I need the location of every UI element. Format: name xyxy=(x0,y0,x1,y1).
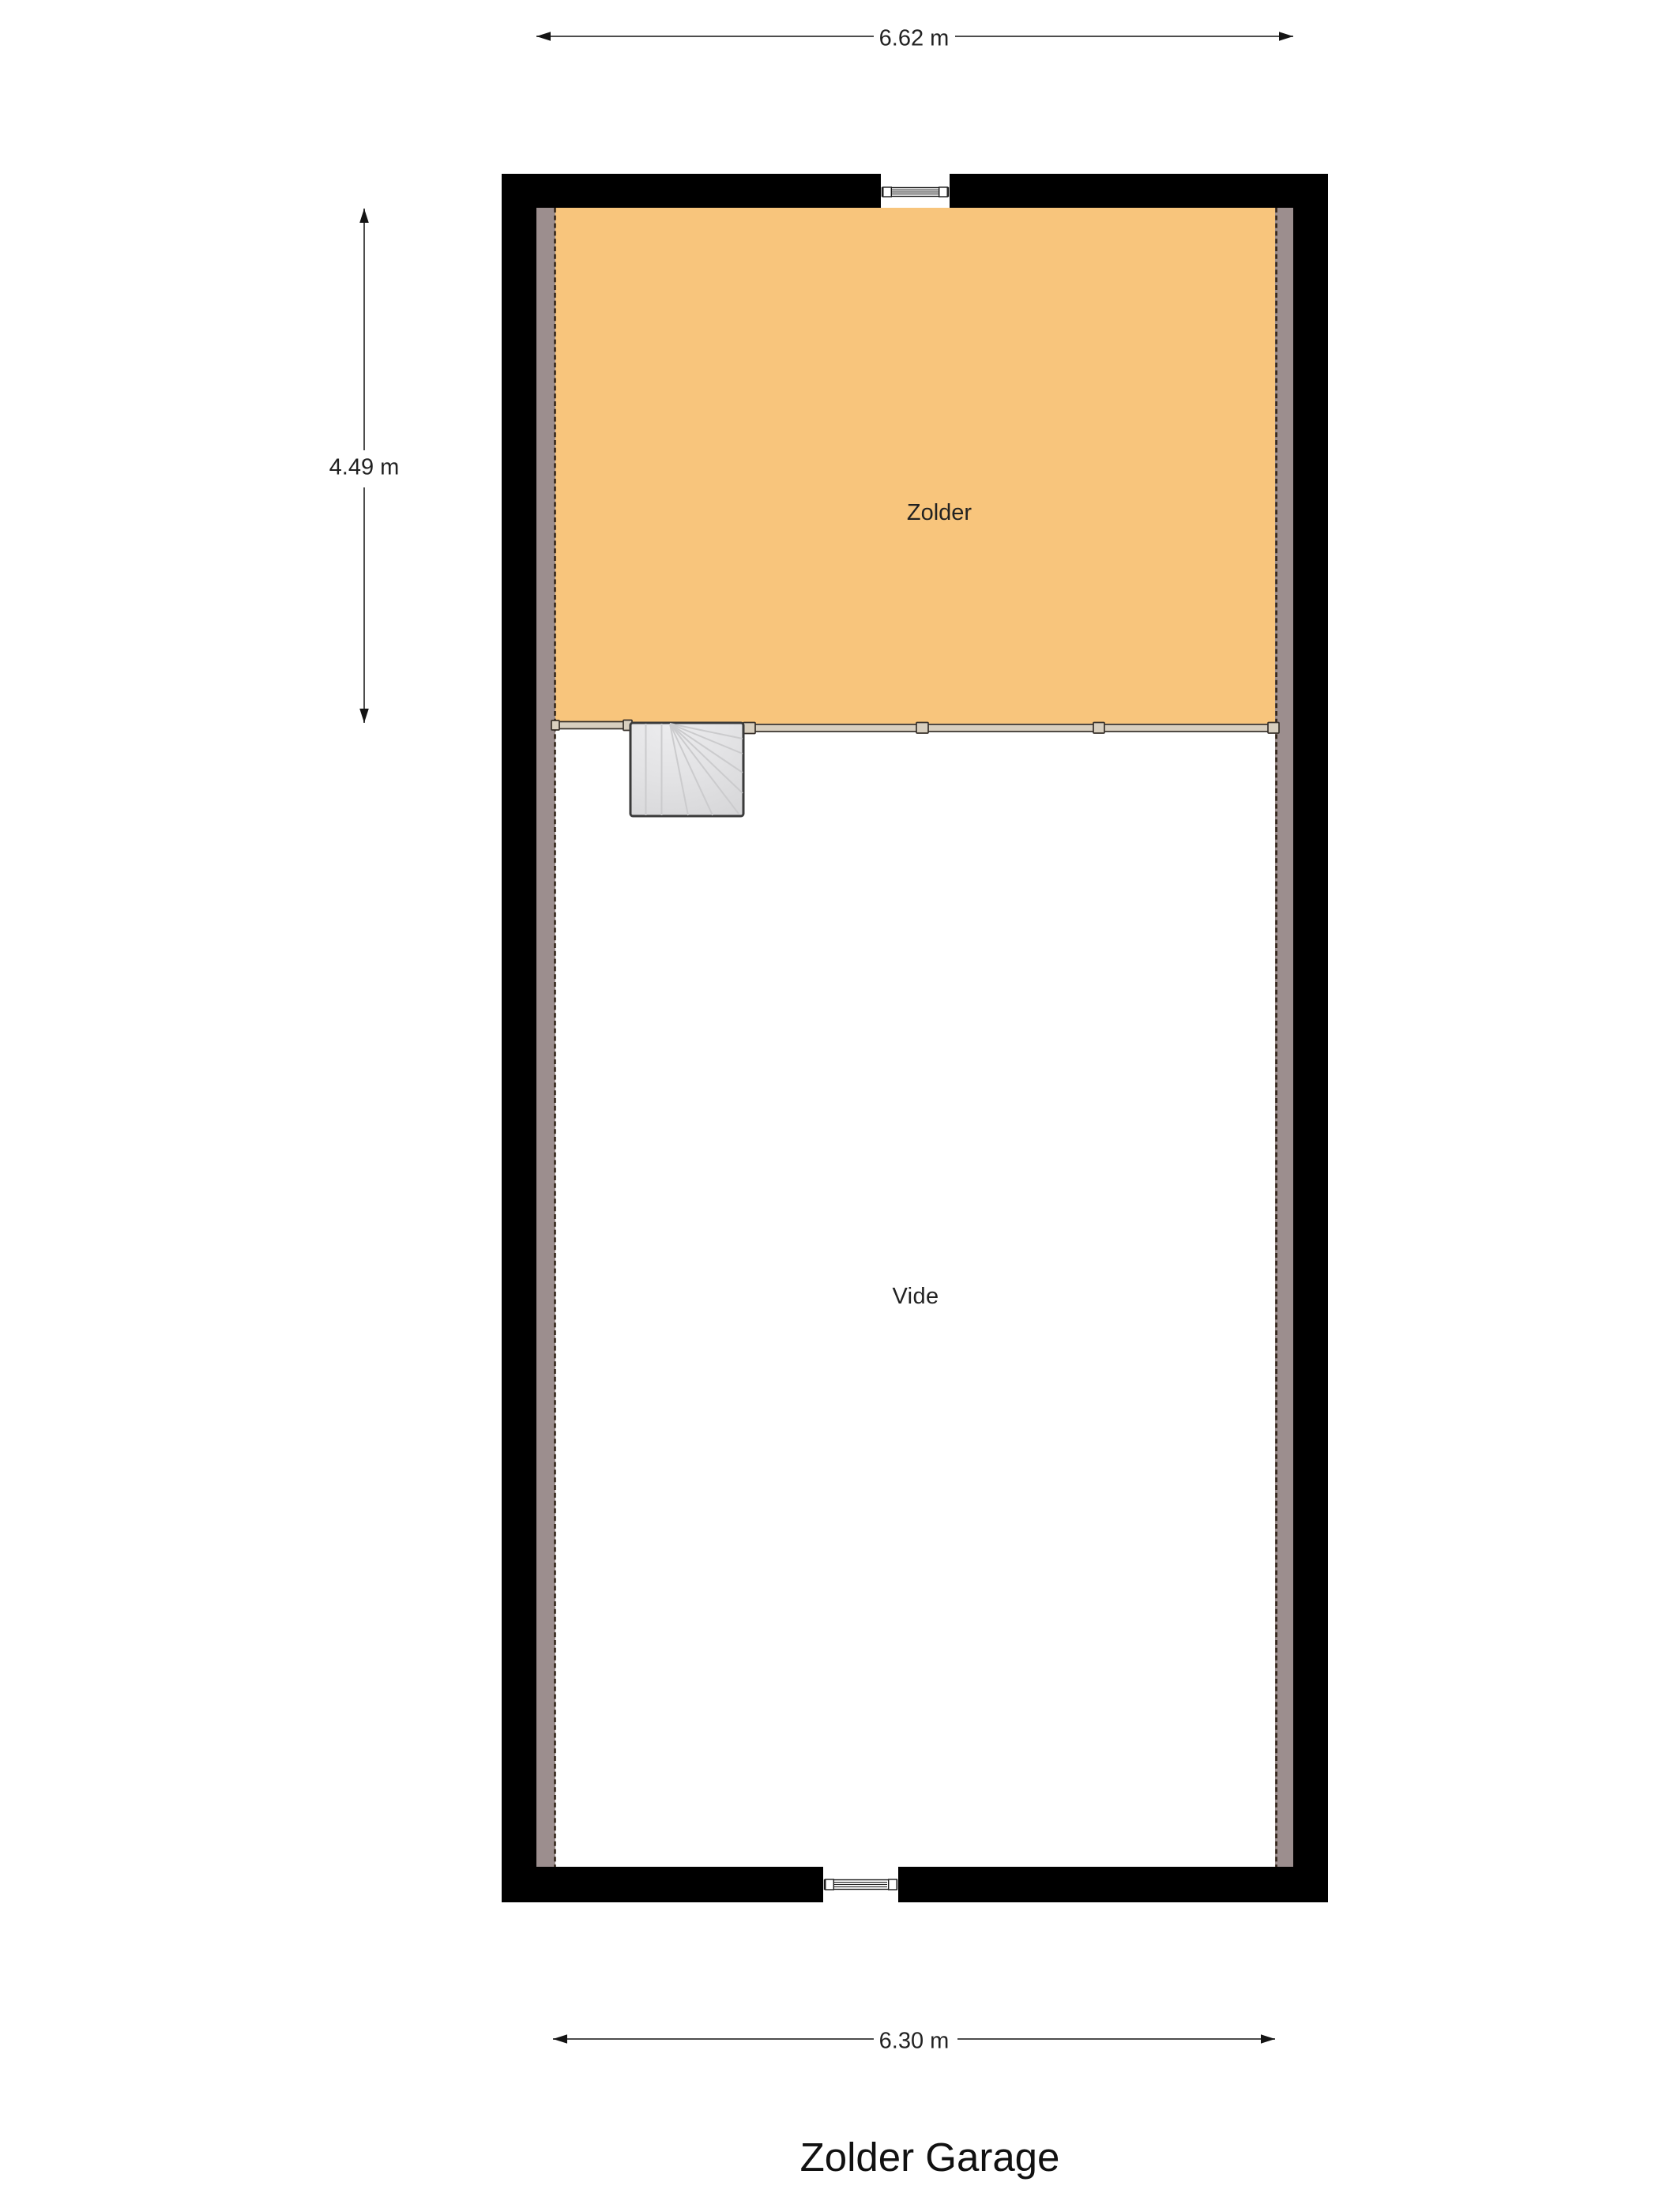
svg-text:Vide: Vide xyxy=(892,1284,939,1309)
svg-text:6.62 m: 6.62 m xyxy=(879,26,950,51)
svg-text:4.49 m: 4.49 m xyxy=(329,455,400,480)
svg-text:Zolder Garage: Zolder Garage xyxy=(800,2135,1060,2180)
svg-text:Zolder: Zolder xyxy=(907,500,972,525)
svg-text:6.30 m: 6.30 m xyxy=(879,2029,950,2054)
